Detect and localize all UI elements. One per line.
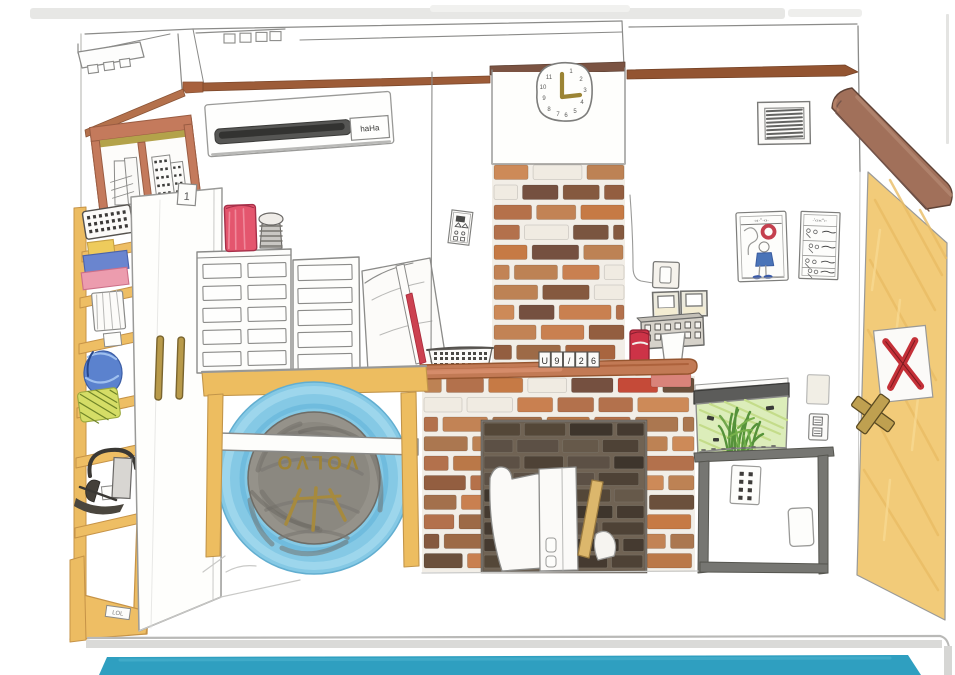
svg-text:haHa: haHa xyxy=(360,123,380,133)
svg-text:·›‹·‛‛·‹›·: ·›‹·‛‛·‹›· xyxy=(753,218,769,225)
svg-text:U: U xyxy=(541,356,548,366)
svg-text:11: 11 xyxy=(546,75,553,81)
svg-text:6: 6 xyxy=(591,356,596,366)
svg-text:VOLVO: VOLVO xyxy=(273,451,358,472)
svg-text:·‛‹››‹‛‛›·: ·‛‹››‹‛‛›· xyxy=(812,218,828,225)
svg-text:2: 2 xyxy=(579,356,584,366)
svg-text:10: 10 xyxy=(540,85,547,91)
svg-text:9: 9 xyxy=(554,356,559,366)
svg-text:1: 1 xyxy=(183,191,190,203)
